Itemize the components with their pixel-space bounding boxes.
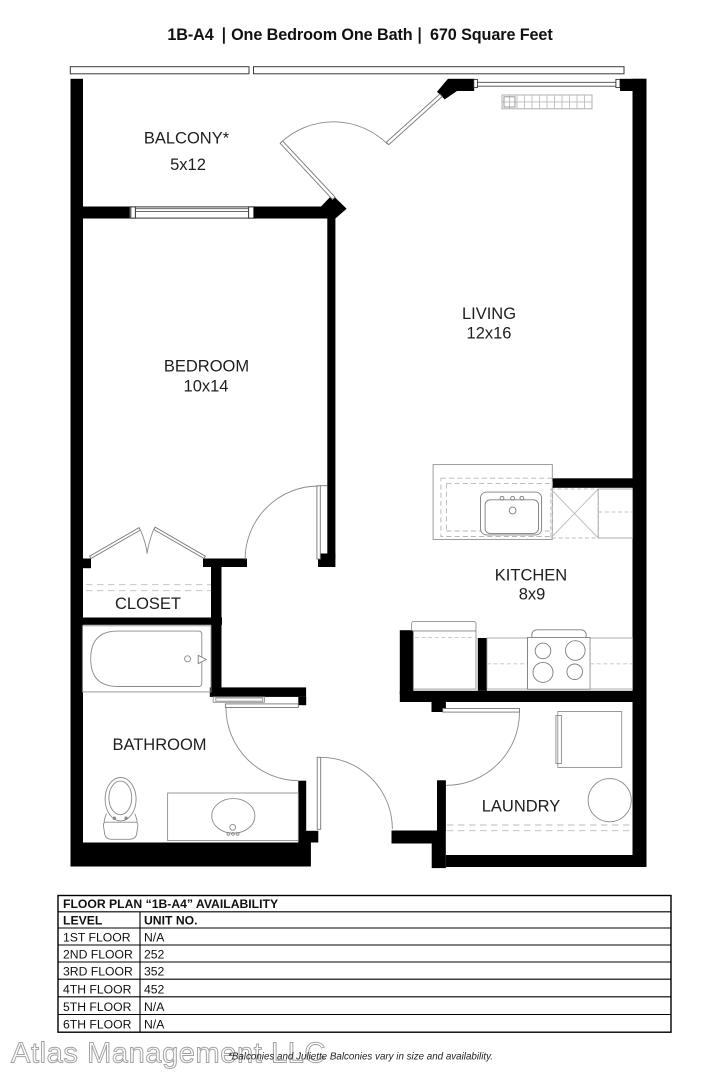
svg-text:FLOOR PLAN “1B-A4” AVAILABILIT: FLOOR PLAN “1B-A4” AVAILABILITY [63,897,278,911]
svg-text:UNIT NO.: UNIT NO. [144,914,198,928]
svg-text:3RD FLOOR: 3RD FLOOR [63,965,133,979]
svg-text:5TH FLOOR: 5TH FLOOR [63,1000,132,1014]
svg-text:LIVING: LIVING [462,305,516,323]
svg-text:N/A: N/A [144,931,165,945]
svg-text:1ST FLOOR: 1ST FLOOR [63,931,131,945]
svg-text:BATHROOM: BATHROOM [112,736,206,754]
svg-text:2ND FLOOR: 2ND FLOOR [63,948,133,962]
svg-text:352: 352 [144,965,165,979]
svg-text:6TH FLOOR: 6TH FLOOR [63,1018,132,1032]
svg-text:8x9: 8x9 [519,586,546,604]
svg-text:LAUNDRY: LAUNDRY [482,798,561,816]
svg-text:5x12: 5x12 [170,156,206,174]
svg-text:CLOSET: CLOSET [115,595,181,613]
svg-text:12x16: 12x16 [467,325,512,343]
svg-text:10x14: 10x14 [184,378,229,396]
svg-text:LEVEL: LEVEL [63,914,103,928]
svg-text:KITCHEN: KITCHEN [495,567,567,585]
svg-text:N/A: N/A [144,1000,165,1014]
svg-text:BEDROOM: BEDROOM [164,358,249,376]
svg-text:*Balconies and Juliette Balcon: *Balconies and Juliette Balconies vary i… [228,1052,493,1063]
svg-text:252: 252 [144,948,165,962]
svg-text:BALCONY*: BALCONY* [144,130,230,148]
svg-text:452: 452 [144,982,165,996]
svg-text:1B-A4 ∣ One Bedroom One Bath: 1B-A4 ∣ One Bedroom One Bath ∣ 670 Squar… [167,26,553,44]
svg-text:4TH FLOOR: 4TH FLOOR [63,982,132,996]
svg-text:N/A: N/A [144,1018,165,1032]
